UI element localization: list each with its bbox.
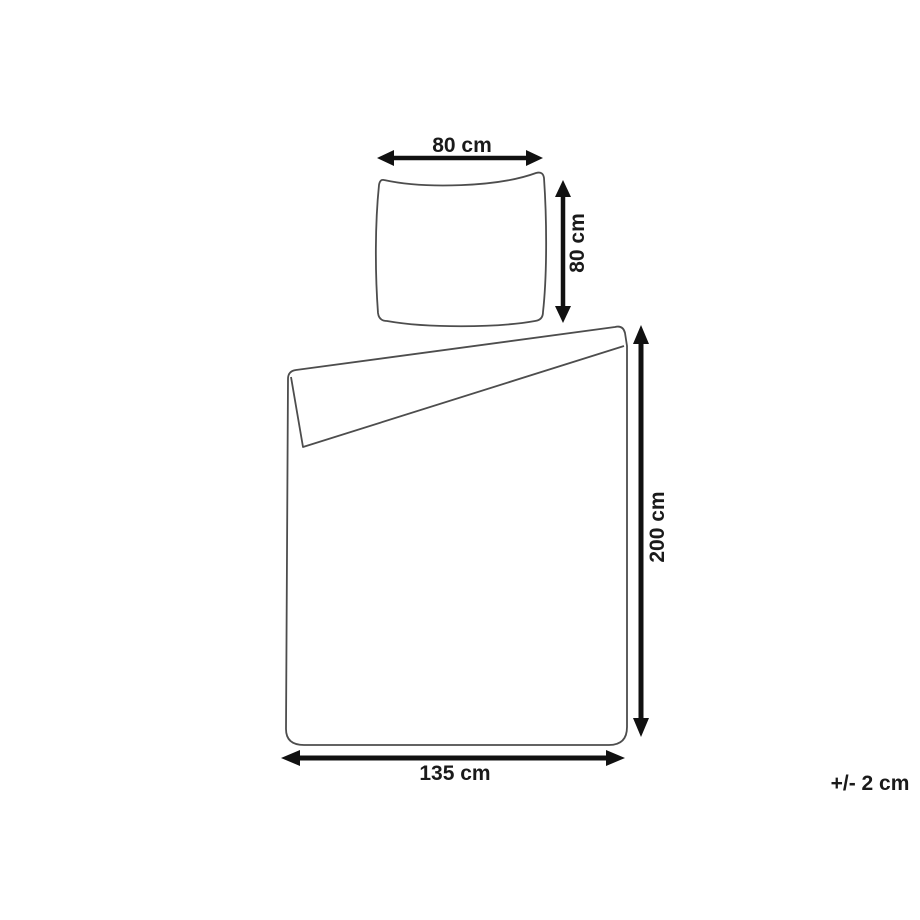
arrowhead-right [526, 150, 543, 166]
bedding-dimensions-page: 80 cm 80 cm 200 cm 135 cm +/- 2 cm [0, 0, 920, 920]
duvet-height-label: 200 cm [646, 491, 669, 562]
duvet-cover-outline [286, 327, 627, 745]
duvet-width-label: 135 cm [419, 762, 490, 785]
pillow-width-label: 80 cm [432, 134, 492, 157]
bedding-dimensions-diagram: 80 cm 80 cm 200 cm 135 cm +/- 2 cm [0, 0, 920, 920]
arrowhead-down [633, 718, 649, 737]
arrowhead-up [633, 325, 649, 344]
pillow-height-label: 80 cm [566, 213, 589, 273]
pillowcase-outline [376, 173, 546, 327]
arrowhead-left [377, 150, 394, 166]
arrowhead-down [555, 306, 571, 323]
tolerance-label: +/- 2 cm [831, 772, 910, 795]
arrowhead-up [555, 180, 571, 197]
arrowhead-left [281, 750, 300, 766]
arrowhead-right [606, 750, 625, 766]
